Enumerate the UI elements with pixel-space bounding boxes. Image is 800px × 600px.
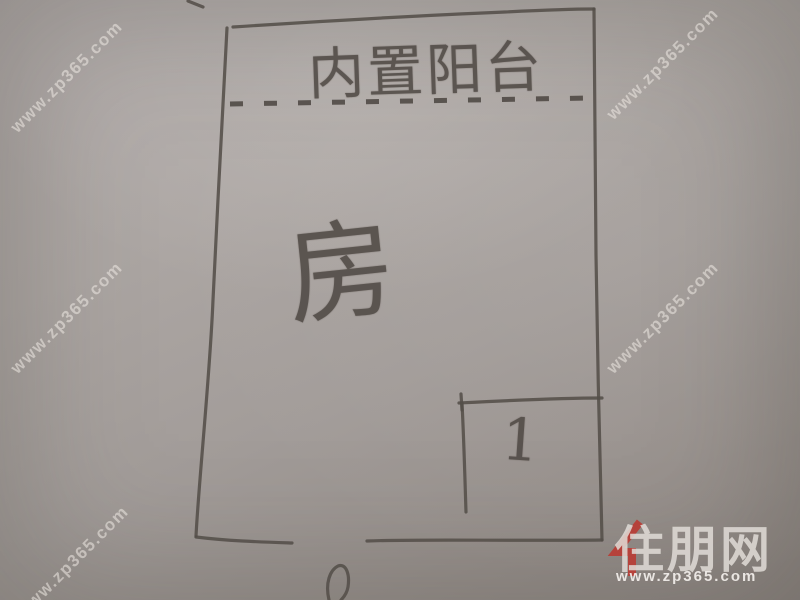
room-label: 房 xyxy=(278,181,402,347)
watermark-text: www.zp365.com xyxy=(13,502,133,600)
balcony-label: 内置阳台 xyxy=(307,22,546,111)
wall-right xyxy=(594,9,602,540)
closet-left-line xyxy=(462,403,466,512)
wall-bottom-right-segment xyxy=(367,540,602,541)
closet-label: 1 xyxy=(500,405,542,475)
wall-bottom-left-segment xyxy=(196,537,292,543)
site-logo: 住朋网 www.zp365.com xyxy=(602,510,800,585)
wall-left xyxy=(196,28,227,536)
logo-row: 住朋网 xyxy=(602,510,800,564)
watermark-text: www.zp365.com xyxy=(7,258,127,378)
floor-plan-photo: 内置阳台 房 1 www.zp365.com www.zp365.com www… xyxy=(0,0,800,600)
closet-top-line xyxy=(459,398,602,403)
pencil-smudge xyxy=(188,1,203,7)
logo-url-text: www.zp365.com xyxy=(616,568,800,585)
watermark-text: www.zp365.com xyxy=(603,258,723,378)
watermark-text: www.zp365.com xyxy=(7,17,127,137)
watermark-text: www.zp365.com xyxy=(603,4,723,124)
door-swing-mark xyxy=(328,566,349,600)
closet-left-tick xyxy=(461,394,462,410)
